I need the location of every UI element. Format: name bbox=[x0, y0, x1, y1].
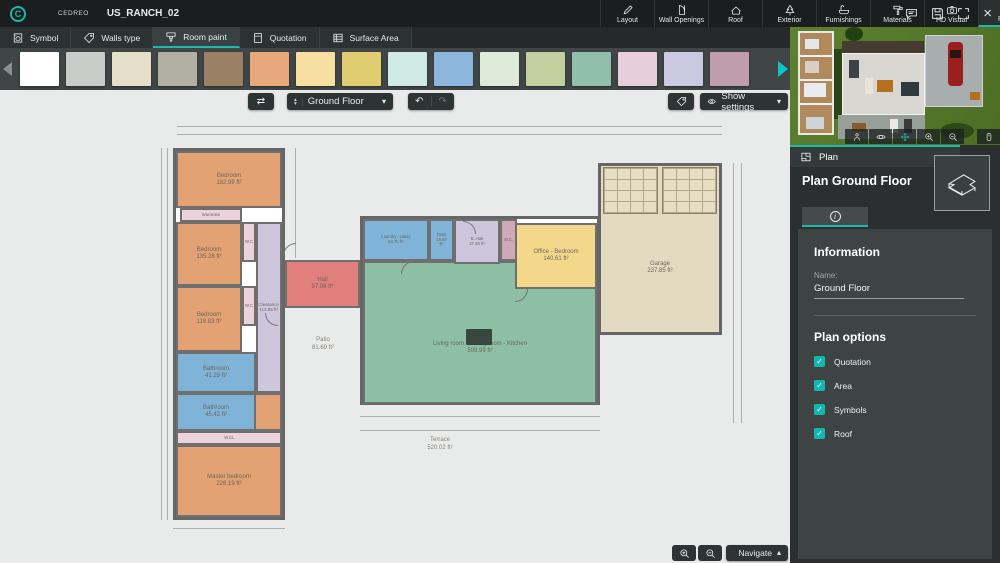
kitchen-island[interactable] bbox=[466, 329, 492, 345]
pan-view-button[interactable] bbox=[893, 129, 916, 144]
comment-icon[interactable] bbox=[905, 7, 918, 20]
room-bathroom-2[interactable]: Bathroom45.42 ft² bbox=[176, 393, 256, 431]
checkbox-checked-icon[interactable] bbox=[814, 404, 825, 415]
fullscreen-icon[interactable] bbox=[957, 7, 970, 20]
plan-icon bbox=[800, 151, 812, 163]
color-swatch[interactable] bbox=[572, 52, 611, 86]
palette-scroll-left[interactable] bbox=[0, 48, 14, 90]
color-swatch[interactable] bbox=[388, 52, 427, 86]
room-garage[interactable]: Garage237.85 ft² bbox=[598, 163, 722, 335]
tree-icon bbox=[784, 4, 796, 16]
color-swatch[interactable] bbox=[618, 52, 657, 86]
project-title: US_RANCH_02 bbox=[89, 0, 239, 27]
room-toilet[interactable]: Toilet18.87 ft² bbox=[429, 219, 454, 261]
garage-door bbox=[662, 167, 717, 214]
tool-symbol[interactable]: Symbol bbox=[0, 27, 71, 48]
mouse-icon bbox=[984, 132, 994, 142]
tool-room-paint[interactable]: Room paint bbox=[153, 27, 239, 48]
tab-roof[interactable]: Roof bbox=[708, 0, 762, 27]
room-hall[interactable]: Hall97.08 ft² bbox=[285, 260, 360, 308]
door-icon bbox=[676, 4, 688, 16]
chevron-right-icon bbox=[778, 61, 788, 77]
zoom-out-icon bbox=[705, 548, 716, 559]
name-label: Name: bbox=[814, 271, 976, 280]
color-swatch[interactable] bbox=[112, 52, 151, 86]
floor-selector-value: Ground Floor bbox=[308, 96, 364, 107]
tool-surface-area[interactable]: Surface Area bbox=[320, 27, 412, 48]
color-swatch[interactable] bbox=[250, 52, 289, 86]
option-roof[interactable]: Roof bbox=[814, 428, 976, 439]
information-heading: Information bbox=[814, 245, 976, 259]
info-tab[interactable]: i bbox=[802, 207, 868, 227]
cedreo-app: C CEDREO US_RANCH_02 Layout Wall Opening… bbox=[0, 0, 1000, 563]
tab-exterior[interactable]: Exterior bbox=[762, 0, 816, 27]
divider bbox=[431, 96, 432, 107]
navigate-button[interactable]: Navigate bbox=[726, 545, 788, 561]
dimension-line bbox=[167, 148, 168, 520]
person-icon bbox=[852, 132, 862, 142]
dimension-line bbox=[741, 163, 742, 423]
zoom-in-icon bbox=[679, 548, 690, 559]
right-sidebar: Plan Plan Ground Floor i Information Nam… bbox=[790, 27, 1000, 563]
tab-layout[interactable]: Layout bbox=[600, 0, 654, 27]
preview-zoom-in-button[interactable] bbox=[917, 129, 940, 144]
palette-scroll-right[interactable] bbox=[776, 48, 790, 90]
list-icon bbox=[332, 32, 344, 44]
color-swatch[interactable] bbox=[480, 52, 519, 86]
option-quotation[interactable]: Quotation bbox=[814, 356, 976, 367]
close-icon[interactable] bbox=[983, 6, 992, 21]
panel-title: Plan Ground Floor bbox=[802, 174, 912, 188]
redo-icon[interactable] bbox=[439, 97, 447, 107]
garage-door bbox=[603, 167, 658, 214]
symbol-icon bbox=[12, 32, 24, 44]
preview-3d[interactable] bbox=[790, 27, 1000, 145]
undo-icon[interactable] bbox=[415, 97, 423, 107]
tag-paint-icon bbox=[676, 96, 687, 107]
roof-icon bbox=[730, 4, 742, 16]
preview-zoom-out-button[interactable] bbox=[941, 129, 964, 144]
swatch-list bbox=[14, 52, 776, 86]
tab-wall-openings[interactable]: Wall Openings bbox=[654, 0, 708, 27]
dimension-line bbox=[161, 148, 162, 520]
brand-name: CEDREO bbox=[58, 10, 89, 17]
zoom-in-icon bbox=[924, 132, 934, 142]
chevron-left-icon bbox=[3, 62, 12, 76]
tab-furnishings[interactable]: Furnishings bbox=[816, 0, 870, 27]
room-bedroom-mid[interactable]: Bedroom135.28 ft² bbox=[176, 222, 242, 286]
chevron-down-icon bbox=[382, 97, 386, 107]
zoom-out-button[interactable] bbox=[698, 545, 722, 561]
floor-selector[interactable]: ▴▾ Ground Floor bbox=[287, 93, 393, 110]
dimension-line bbox=[360, 430, 600, 431]
room-b-hall[interactable]: B. Hall37.26 ft² bbox=[454, 219, 500, 264]
iso-view-button[interactable] bbox=[934, 155, 990, 211]
floor-plan[interactable]: Bedroom182.99 ft² Wardrobe Bedroom135.28… bbox=[155, 118, 775, 558]
color-swatch[interactable] bbox=[296, 52, 335, 86]
calculator-icon bbox=[252, 32, 264, 44]
bathtub-icon bbox=[838, 4, 850, 16]
room-clearance[interactable]: Clearance112.85 ft² bbox=[256, 222, 282, 393]
color-swatch[interactable] bbox=[20, 52, 59, 86]
room-bedroom-low[interactable]: Bedroom118.83 ft² bbox=[176, 286, 242, 352]
zoom-in-button[interactable] bbox=[672, 545, 696, 561]
tree bbox=[845, 27, 863, 41]
color-swatch[interactable] bbox=[204, 52, 243, 86]
preview-roof-band bbox=[842, 41, 924, 53]
room-bathroom-1[interactable]: Bathroom41.28 ft² bbox=[176, 352, 256, 393]
dimension-line bbox=[177, 126, 722, 127]
dimension-line bbox=[360, 416, 600, 417]
plan-canvas[interactable]: ▴▾ Ground Floor Show settings bbox=[0, 90, 790, 563]
color-swatch[interactable] bbox=[158, 52, 197, 86]
room-laundry[interactable]: Laundry - Utility53.75 ft² bbox=[363, 219, 429, 261]
preview-toolbar bbox=[790, 128, 1000, 145]
left-wing: Bedroom182.99 ft² Wardrobe Bedroom135.28… bbox=[173, 148, 285, 520]
preview-mouse-button[interactable] bbox=[977, 129, 1000, 144]
refresh-paint-button[interactable] bbox=[248, 93, 274, 110]
room-wardrobe[interactable]: Wardrobe bbox=[180, 208, 242, 222]
preview-garage bbox=[925, 35, 983, 107]
save-icon[interactable] bbox=[931, 7, 944, 20]
option-area[interactable]: Area bbox=[814, 380, 976, 391]
room-office[interactable]: Office - Bedroom140.61 ft² bbox=[515, 223, 597, 289]
plan-tools-toolbar: Symbol Walls type Room paint Quotation S… bbox=[0, 27, 790, 48]
eye-icon bbox=[707, 96, 716, 107]
room-entry-patch[interactable] bbox=[256, 393, 282, 431]
first-person-button[interactable] bbox=[845, 129, 868, 144]
room-patio-label: Patio 81.69 ft² bbox=[295, 336, 351, 352]
plan-options-heading: Plan options bbox=[814, 330, 976, 344]
checkbox-checked-icon[interactable] bbox=[814, 380, 825, 391]
color-swatch[interactable] bbox=[342, 52, 381, 86]
preview-left-wing bbox=[798, 31, 834, 135]
brand-logo[interactable]: C bbox=[0, 0, 58, 27]
undo-redo-group bbox=[408, 93, 454, 110]
orbit-icon bbox=[876, 132, 886, 142]
room-master-bedroom[interactable]: Master bedroom226.19 ft² bbox=[176, 445, 282, 517]
tool-quotation[interactable]: Quotation bbox=[240, 27, 320, 48]
cedreo-logo-icon: C bbox=[10, 6, 26, 22]
pencil-icon bbox=[622, 4, 634, 16]
paint-brush-icon bbox=[165, 31, 177, 43]
floor-name-field[interactable]: Ground Floor bbox=[814, 283, 964, 299]
checkbox-checked-icon[interactable] bbox=[814, 356, 825, 367]
main-block: Living room - Dining room - Kitchen509.9… bbox=[360, 216, 600, 405]
canvas-zoom-controls bbox=[672, 545, 722, 561]
room-wc-2[interactable]: W.C. bbox=[242, 286, 256, 326]
room-wc-1[interactable]: W.C. bbox=[242, 222, 256, 262]
room-bedroom-top[interactable]: Bedroom182.99 ft² bbox=[176, 151, 282, 208]
room-closet[interactable]: W.CL bbox=[176, 431, 282, 445]
color-swatch[interactable] bbox=[526, 52, 565, 86]
show-settings-button[interactable]: Show settings bbox=[700, 93, 788, 110]
tag-icon bbox=[83, 32, 95, 44]
chevron-up-icon bbox=[777, 548, 781, 558]
chevron-down-icon bbox=[777, 97, 781, 107]
floor-stepper-icon[interactable]: ▴▾ bbox=[294, 98, 303, 106]
dimension-line bbox=[177, 134, 722, 135]
dimension-line bbox=[295, 148, 296, 258]
color-swatch[interactable] bbox=[710, 52, 749, 86]
color-swatch[interactable] bbox=[434, 52, 473, 86]
room-terrace-label: Terrace 520.02 ft² bbox=[405, 436, 475, 452]
dimension-line bbox=[733, 163, 734, 423]
panel-body: Information Name: Ground Floor Plan opti… bbox=[798, 229, 992, 559]
paint-roller-icon bbox=[892, 4, 904, 16]
pan-icon bbox=[900, 132, 910, 142]
preview-main-floor bbox=[842, 53, 925, 115]
dimension-line bbox=[173, 528, 285, 529]
color-swatch[interactable] bbox=[664, 52, 703, 86]
top-bar: C CEDREO US_RANCH_02 Layout Wall Opening… bbox=[0, 0, 1000, 27]
swap-icon bbox=[257, 97, 265, 107]
paint-visibility-button[interactable] bbox=[668, 93, 694, 110]
hedge bbox=[834, 49, 842, 119]
color-swatch[interactable] bbox=[66, 52, 105, 86]
checkbox-checked-icon[interactable] bbox=[814, 428, 825, 439]
tool-walls-type[interactable]: Walls type bbox=[71, 27, 153, 48]
iso-shape-icon bbox=[942, 166, 982, 200]
orbit-view-button[interactable] bbox=[869, 129, 892, 144]
preview-car bbox=[948, 42, 963, 86]
window-controls bbox=[905, 0, 992, 27]
divider bbox=[814, 315, 976, 316]
color-palette bbox=[0, 48, 790, 90]
zoom-out-icon bbox=[948, 132, 958, 142]
info-icon: i bbox=[830, 211, 841, 222]
option-symbols[interactable]: Symbols bbox=[814, 404, 976, 415]
